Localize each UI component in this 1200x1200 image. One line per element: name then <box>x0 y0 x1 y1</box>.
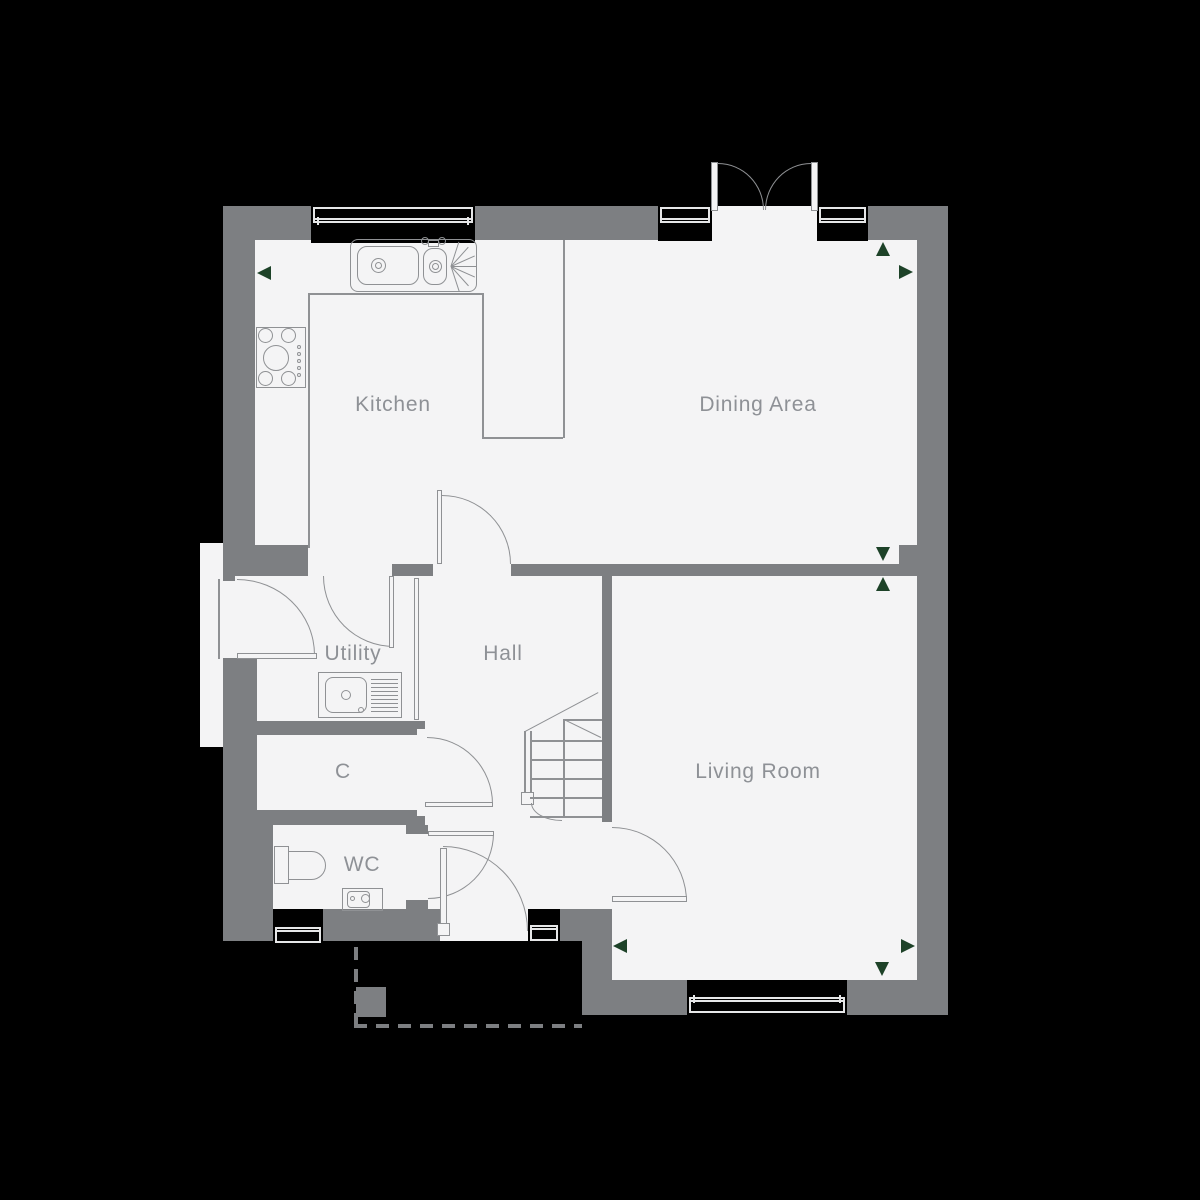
wall-wc-left <box>223 825 273 941</box>
direction-marker-down-icon <box>875 962 889 976</box>
kitchen-window <box>311 205 475 243</box>
wall-top-right-corner <box>867 206 948 240</box>
wall-left-mid <box>223 658 257 810</box>
wall-back-door-stub <box>223 576 235 581</box>
room-label-living: Living Room <box>695 760 821 784</box>
back-door-threshold-line <box>218 579 220 659</box>
living-room-window <box>687 980 847 1015</box>
room-label-hall: Hall <box>483 642 522 666</box>
direction-marker-left-icon <box>613 939 627 953</box>
wall-hall-bottom <box>560 909 612 941</box>
utility-hall-partition <box>414 578 419 720</box>
wall-wc-right-bottom <box>406 900 428 909</box>
wall-living-bottom-left <box>582 980 687 1015</box>
room-label-kitchen: Kitchen <box>355 393 431 417</box>
wall-wc-right-top <box>406 825 428 834</box>
direction-marker-down-icon <box>876 547 890 561</box>
wall-utility-top-block <box>223 545 308 576</box>
wall-right <box>917 240 948 1015</box>
cupboard-jamb-tick-bottom <box>417 810 425 816</box>
living-door-jamb-tick <box>602 898 612 909</box>
direction-marker-right-icon <box>901 939 915 953</box>
room-label-wc: WC <box>344 853 381 877</box>
wall-utility-c-divider <box>255 721 425 735</box>
wall-divider-step <box>899 545 917 576</box>
floor-plan: Kitchen Dining Area Utility Hall C WC Li… <box>0 0 1200 1200</box>
direction-marker-up-icon <box>876 242 890 256</box>
wc-window <box>273 909 323 945</box>
wall-living-bottom-right <box>847 980 917 1015</box>
direction-marker-right-icon <box>899 265 913 279</box>
room-label-cupboard: C <box>335 760 351 784</box>
porch-outline-bottom <box>354 1024 582 1028</box>
wall-porch-side <box>582 941 612 980</box>
wall-divider-b <box>511 564 917 576</box>
direction-marker-up-icon <box>876 577 890 591</box>
cupboard-jamb-tick-top <box>417 729 425 735</box>
room-label-utility: Utility <box>325 642 382 666</box>
porch-post <box>356 987 386 1017</box>
direction-marker-left-icon <box>257 266 271 280</box>
wall-left-kitchen <box>223 206 255 545</box>
wall-c-wc-divider <box>223 810 425 825</box>
french-door-opening <box>711 206 818 240</box>
wall-divider-a <box>392 564 433 576</box>
wall-top-mid <box>475 206 658 240</box>
wall-wc-bottom <box>323 909 440 941</box>
dining-window-right <box>817 205 868 241</box>
room-label-dining: Dining Area <box>699 393 816 417</box>
dining-window-left <box>658 205 712 241</box>
hall-window <box>528 909 560 943</box>
wall-hall-living <box>602 576 612 822</box>
back-door-threshold <box>223 580 235 658</box>
